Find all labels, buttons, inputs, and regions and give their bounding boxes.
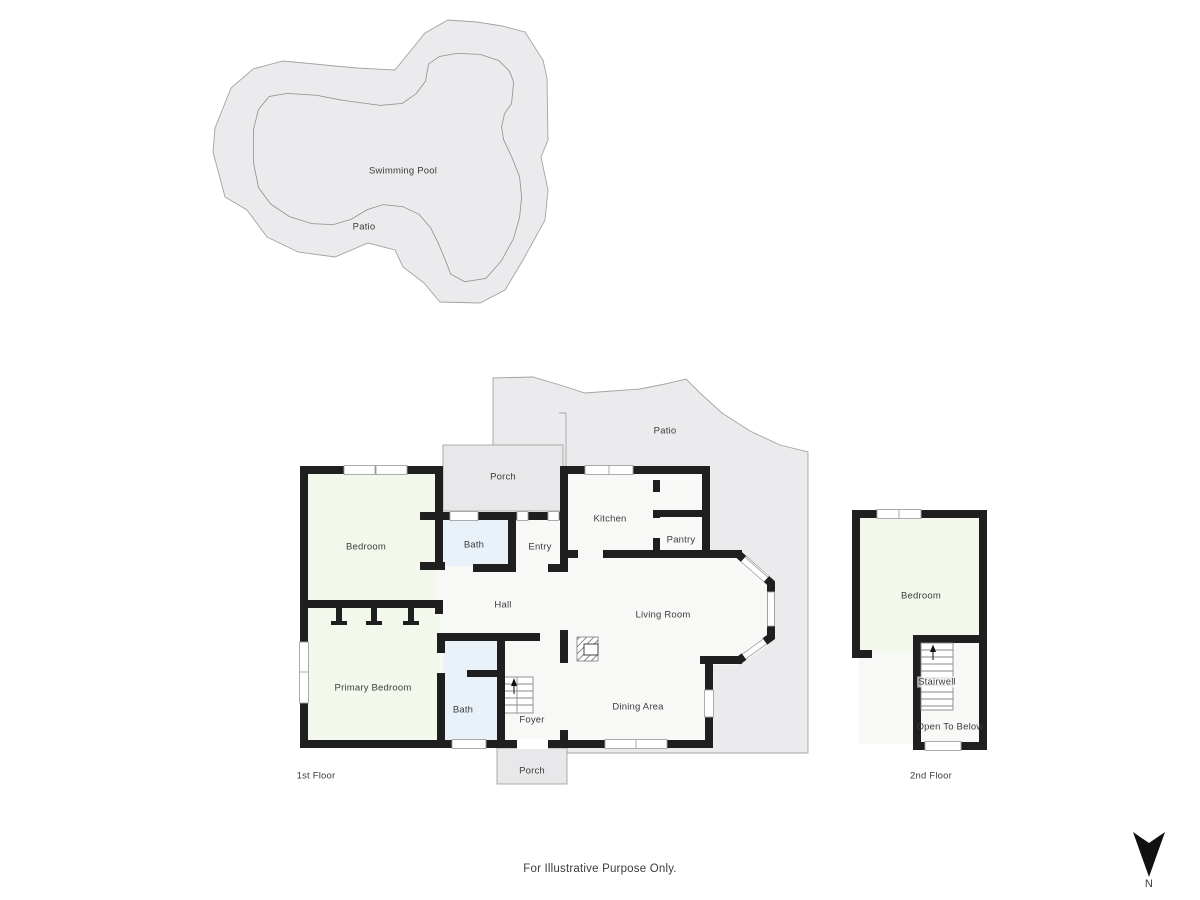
room-label-foyer: Foyer [519,715,544,726]
room-label-primary-bedroom: Primary Bedroom [335,683,412,694]
room-label-pantry: Pantry [667,535,696,546]
room-label-hall: Hall [494,600,511,611]
room-label-bath-top: Bath [464,540,484,551]
compass-north-label: N [1145,878,1153,890]
room-label-entry: Entry [528,542,551,553]
room-label-pool-patio: Patio [353,222,376,233]
room-label-porch-bottom: Porch [519,766,545,777]
room-label-bedroom-2nd: Bedroom [901,591,941,602]
room-label-bedroom: Bedroom [346,542,386,553]
fireplace [577,637,598,661]
floor-label-1st: 1st Floor [297,771,336,782]
room-label-stairwell: Stairwell [917,677,957,688]
floor-plan-drawing [0,0,1200,900]
floor-label-2nd: 2nd Floor [910,771,952,782]
room-label-kitchen: Kitchen [593,514,626,525]
disclaimer-text: For Illustrative Purpose Only. [523,863,676,875]
room-label-porch-top: Porch [490,472,516,483]
room-label-dining-area: Dining Area [612,702,663,713]
room-label-open-to-below: Open To Below [917,722,984,733]
floor-plan-canvas: Swimming Pool Patio Porch Bedroom Bath E… [0,0,1200,900]
room-label-rear-patio: Patio [654,426,677,437]
room-label-swimming-pool: Swimming Pool [369,166,437,177]
room-label-living-room: Living Room [635,610,690,621]
pool-patio-area [213,20,548,303]
room-label-bath-bottom: Bath [453,705,473,716]
foyer-staircase [501,677,533,713]
north-arrow-icon [1133,832,1165,877]
